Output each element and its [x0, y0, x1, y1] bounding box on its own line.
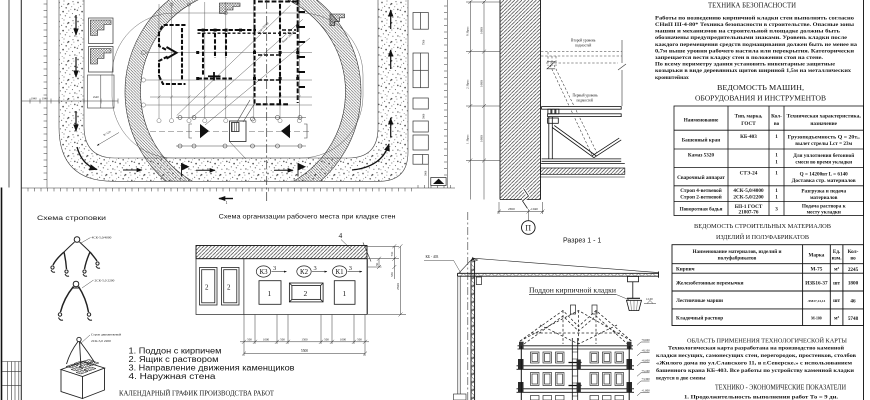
svg-text:1: 1: [775, 171, 778, 177]
svg-text:м³: м³: [834, 316, 840, 322]
svg-text:Второй уровень: Второй уровень: [571, 39, 596, 43]
svg-text:К3: К3: [259, 269, 268, 276]
svg-text:500: 500: [280, 337, 285, 341]
svg-text:машин и механизмов на строител: машин и механизмов на строительной площа…: [655, 28, 840, 35]
svg-text:во: во: [774, 121, 780, 127]
svg-text:1600: 1600: [479, 80, 483, 87]
svg-text:1 Ярус: 1 Ярус: [466, 134, 470, 144]
svg-text:КАЛЕНДАРНЫЙ ГРАФИК ПРОИЗВОДС: КАЛЕНДАРНЫЙ ГРАФИК ПРОИЗВОДСТВА РАБОТ: [119, 389, 275, 397]
svg-text:500: 500: [247, 337, 252, 341]
svg-text:3: 3: [349, 265, 352, 272]
svg-text:каждого перемещения средств по: каждого перемещения средств подмащивания…: [655, 41, 857, 48]
svg-text:Поворотная бадья: Поворотная бадья: [680, 206, 723, 213]
svg-text:ОБОРУДОВАНИЯ И ИНСТРУМЕНТОВ: ОБОРУДОВАНИЯ И ИНСТРУМЕНТОВ: [695, 94, 826, 102]
svg-text:КБ-403: КБ-403: [740, 134, 757, 140]
svg-text:21807-76: 21807-76: [739, 209, 759, 215]
svg-text:2 Ярус: 2 Ярус: [466, 79, 470, 89]
svg-text:ГОСТ: ГОСТ: [741, 121, 756, 127]
svg-text:+1,800: +1,800: [642, 389, 651, 393]
svg-text:материалов: материалов: [810, 195, 838, 201]
svg-text:ведутся в две смены: ведутся в две смены: [656, 375, 706, 381]
svg-text:2650: 2650: [508, 207, 515, 211]
svg-text:+8,100: +8,100: [642, 349, 651, 353]
svg-text:4: 4: [339, 231, 343, 240]
svg-text:Грузоподъемность Q = 20т.,: Грузоподъемность Q = 20т.,: [788, 135, 861, 141]
svg-text:Доставка стр. материалов: Доставка стр. материалов: [792, 178, 856, 184]
svg-text:5748: 5748: [848, 316, 859, 322]
svg-text:Строп 4-ветвевой: Строп 4-ветвевой: [680, 187, 721, 194]
svg-text:смеси во время укладки: смеси во время укладки: [795, 160, 852, 166]
svg-text:Кирпич: Кирпич: [676, 267, 695, 273]
svg-text:530: 530: [390, 272, 394, 277]
svg-text:1: 1: [268, 289, 272, 298]
svg-text:Железобетонные перемычки: Железобетонные перемычки: [676, 279, 744, 286]
svg-text:Лестничные марши: Лестничные марши: [676, 298, 723, 304]
svg-text:1: 1: [226, 200, 228, 205]
svg-text:+6,600: +6,600: [642, 359, 651, 363]
svg-text:Строп двухветвевой: Строп двухветвевой: [91, 332, 121, 336]
svg-text:1500: 1500: [301, 337, 308, 341]
svg-text:м³: м³: [834, 267, 840, 273]
svg-text:Сварочный аппарат: Сварочный аппарат: [677, 174, 725, 181]
svg-text:подмостей: подмостей: [575, 44, 591, 48]
svg-text:2: 2: [227, 284, 231, 292]
svg-text:1600: 1600: [479, 27, 483, 34]
svg-text:46: 46: [850, 299, 856, 305]
svg-text:0,7м выше уровня рабочего наст: 0,7м выше уровня рабочего настила или пе…: [655, 47, 855, 54]
svg-text:полуфабрикатов: полуфабрикатов: [718, 255, 757, 262]
svg-text:1: 1: [775, 134, 778, 140]
svg-text:1: 1: [343, 289, 347, 298]
svg-text:9 Ярус: 9 Ярус: [466, 26, 470, 36]
svg-text:СТЭ-24: СТЭ-24: [740, 171, 758, 177]
svg-text:изм.: изм.: [832, 256, 843, 262]
svg-text:1: 1: [775, 188, 778, 194]
svg-text:2: 2: [205, 284, 209, 292]
svg-text:1: 1: [775, 153, 778, 159]
svg-text:М-100: М-100: [811, 317, 822, 321]
svg-text:5500: 5500: [301, 349, 308, 353]
svg-text:2x40: 2x40: [93, 96, 99, 99]
svg-text:Марка: Марка: [808, 253, 824, 259]
svg-text:ОБЛАСТЬ ПРИМЕНЕНИЯ ТЕХНОЛОГИЧЕ: ОБЛАСТЬ ПРИМЕНЕНИЯ ТЕХНОЛОГИЧЕСКОЙ КАРТЫ: [687, 336, 848, 344]
svg-text:3000: 3000: [423, 113, 426, 119]
svg-text:Q = 14200вт L = 6140: Q = 14200вт L = 6140: [800, 171, 849, 177]
svg-text:козырьки в виде деревянных щит: козырьки в виде деревянных щитов шириной…: [655, 67, 851, 74]
svg-text:ВЕДОМОСТЬ СТРОИТЕЛЬНЫХ МАТЕРИА: ВЕДОМОСТЬ СТРОИТЕЛЬНЫХ МАТЕРИАЛОВ: [694, 223, 831, 230]
svg-text:7500: 7500: [423, 39, 426, 45]
svg-text:710: 710: [390, 251, 394, 256]
svg-text:П: П: [525, 224, 531, 233]
svg-text:+9,600: +9,600: [642, 338, 651, 342]
svg-text:Башенный кран: Башенный кран: [682, 137, 720, 144]
svg-text:Разгрузка и подача: Разгрузка и подача: [801, 188, 846, 194]
svg-text:По всему периметру здания уста: По всему периметру здания установить инв…: [655, 62, 836, 68]
svg-text:подмостей: подмостей: [577, 99, 593, 103]
svg-text:Наименование: Наименование: [684, 117, 719, 123]
svg-text:шт: шт: [833, 280, 840, 286]
svg-text:Кладочный раствор: Кладочный раствор: [676, 315, 723, 322]
svg-text:1. Продолжительность выполнен: 1. Продолжительность выполнения работ То…: [684, 394, 839, 400]
svg-text:+3,300: +3,300: [642, 377, 651, 381]
svg-text:во: во: [850, 256, 856, 262]
svg-text:1600: 1600: [479, 135, 483, 142]
svg-text:1: 1: [775, 194, 778, 200]
svg-text:+5,100: +5,100: [642, 369, 651, 373]
svg-text:кронштейнах: кронштейнах: [655, 74, 689, 81]
svg-text:Техническая характеристика,: Техническая характеристика,: [787, 114, 862, 120]
svg-text:назначение: назначение: [810, 121, 837, 127]
svg-text:Схема строповки: Схема строповки: [37, 215, 106, 222]
svg-text:1940: 1940: [31, 98, 37, 101]
svg-text:3: 3: [775, 207, 778, 213]
svg-text:3: 3: [314, 265, 317, 272]
svg-text:К1: К1: [335, 269, 344, 276]
svg-text:1000: 1000: [340, 337, 347, 341]
svg-text:ВЕДОМОСТЬ МАШИН,: ВЕДОМОСТЬ МАШИН,: [717, 84, 804, 92]
svg-text:4СК-5,0/4000: 4СК-5,0/4000: [733, 188, 764, 194]
svg-text:«Жилого дома по ул.Славского 1: «Жилого дома по ул.Славского 11, в г.Сев…: [656, 360, 852, 366]
svg-text:Наименование материалов, издел: Наименование материалов, изделий и: [692, 248, 781, 255]
svg-text:1: 1: [775, 160, 778, 166]
svg-text:ИЗДЕЛИЙ И ПОЛУФАБРИКАТОВ: ИЗДЕЛИЙ И ПОЛУФАБРИКАТОВ: [716, 233, 809, 241]
svg-text:2СК-5,0/2200: 2СК-5,0/2200: [733, 194, 764, 200]
svg-text:Кол-: Кол-: [848, 249, 859, 255]
svg-text:К2: К2: [300, 269, 309, 276]
svg-text:3: 3: [273, 265, 276, 272]
svg-text:запрещается вести кладку стен: запрещается вести кладку стен в положени…: [655, 55, 824, 61]
svg-text:шт: шт: [833, 298, 840, 304]
svg-text:Работы по возведению кирпичной: Работы по возведению кирпичной кладки ст…: [655, 14, 854, 21]
svg-text:Технологическая карта разработ: Технологическая карта разработана на про…: [668, 344, 844, 351]
svg-text:3000: 3000: [425, 170, 428, 176]
svg-text:обозначены предупредительными: обозначены предупредительными знаками. У…: [655, 34, 848, 41]
svg-text:Ед.: Ед.: [833, 249, 841, 255]
svg-text:2500: 2500: [396, 283, 400, 290]
svg-text:Поддон кирпичной кладки: Поддон кирпичной кладки: [529, 288, 616, 295]
svg-text:4. Наружная стена: 4. Наружная стена: [129, 372, 217, 381]
svg-text:Камаз 5320: Камаз 5320: [688, 153, 715, 159]
svg-text:Разрез 1 - 1: Разрез 1 - 1: [563, 238, 601, 245]
svg-text:1040: 1040: [531, 207, 538, 211]
svg-text:кладки несущих, самонесущих с: кладки несущих, самонесущих стен, перего…: [656, 352, 856, 359]
svg-text:Схема организации рабочего мес: Схема организации рабочего места при кла…: [219, 212, 396, 220]
svg-text:1000: 1000: [263, 337, 270, 341]
svg-text:1940: 1940: [42, 98, 48, 101]
svg-text:месту укладки: месту укладки: [807, 210, 841, 216]
svg-text:М-75: М-75: [810, 267, 822, 273]
svg-text:башенного крана КБ-403. Все ра: башенного крана КБ-403. Все работы по ус…: [656, 367, 854, 374]
svg-text:50: 50: [375, 262, 379, 266]
svg-text:2: 2: [304, 289, 308, 298]
svg-text:1800: 1800: [848, 281, 859, 287]
svg-text:ЛМ27,14,14: ЛМ27,14,14: [808, 299, 826, 303]
svg-text:вылет стрелы Lст = 23м: вылет стрелы Lст = 23м: [795, 141, 852, 147]
svg-text:Строп 2-ветвевой: Строп 2-ветвевой: [680, 193, 721, 200]
svg-text:Кол-: Кол-: [771, 114, 782, 120]
svg-text:Тип, марка,: Тип, марка,: [735, 114, 763, 120]
svg-text:ИЗБ16-37: ИЗБ16-37: [805, 280, 828, 286]
svg-text:2245: 2245: [848, 267, 859, 273]
svg-text:ТЕХНИКО - ЭКОНОМИЧЕСКИЕ ПОКАЗ: ТЕХНИКО - ЭКОНОМИЧЕСКИЕ ПОКАЗАТЕЛИ: [715, 384, 846, 391]
svg-text:ТЕХНИКА БЕЗОПАСНОСТИ: ТЕХНИКА БЕЗОПАСНОСТИ: [708, 1, 796, 10]
svg-text:Первый уровень: Первый уровень: [573, 94, 599, 98]
svg-text:КБ - 403: КБ - 403: [426, 255, 439, 259]
svg-text:500: 500: [324, 337, 329, 341]
svg-text:Для уплотнения бетонной: Для уплотнения бетонной: [793, 152, 854, 159]
svg-text:500: 500: [357, 337, 362, 341]
svg-text:Подача раствора к: Подача раствора к: [802, 203, 846, 209]
svg-text:СНиП III-4-80* Техника безопас: СНиП III-4-80* Техника безопасности в ст…: [655, 21, 855, 28]
